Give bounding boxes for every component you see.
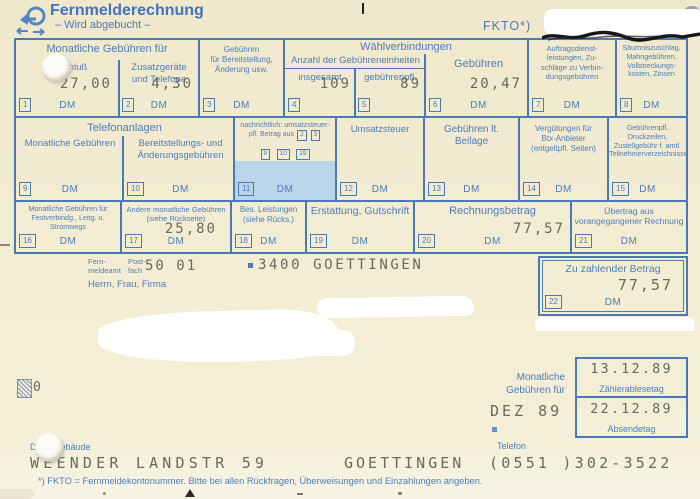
cell-label: Säumniszuschlag, Mahngebühren, Vollstrec… xyxy=(617,44,686,79)
currency-label: DM xyxy=(609,184,686,195)
ref-box: 19 xyxy=(296,149,309,160)
pay-value: 77,57 xyxy=(543,276,673,294)
currency-label: DM xyxy=(16,184,124,195)
phone-label: Telefon xyxy=(497,441,526,451)
currency-label: DM xyxy=(426,100,531,111)
currency-label: DM xyxy=(520,184,607,195)
currency-label: DM xyxy=(617,100,686,111)
group-label: Monatliche Gebühren für xyxy=(16,43,198,56)
currency-label: DM xyxy=(572,236,686,247)
currency-label: DM xyxy=(200,100,283,111)
redaction-small xyxy=(535,317,695,331)
cell-value: 20,47 xyxy=(426,76,522,92)
footnote: *) FKTO = Fernmeldekontonummer. Bitte be… xyxy=(38,476,483,486)
fkto-label: FKTO*) xyxy=(483,19,531,33)
cell-label: Gebühren für Bereitstellung, Änderung us… xyxy=(200,45,283,74)
meter-reading-label: Zählerablesetag xyxy=(577,384,686,394)
cell-nachrichtlich: nachrichtlich: umsatzsteuer- pfl. Betrag… xyxy=(233,116,337,202)
period-marker xyxy=(492,427,497,432)
pay-box-inner: Zu zahlender Betrag 77,57 22 DM xyxy=(542,260,684,312)
cell-label-line2: pfl. Betrag aus 2 3 xyxy=(235,130,335,141)
cell-besondere-leistungen: Bes. Leistungen (siehe Rücks.) 18 DM xyxy=(230,200,307,254)
page-title: Fernmelderechnung xyxy=(50,2,204,20)
currency-label: DM xyxy=(232,236,305,247)
city-marker xyxy=(248,263,253,268)
phone-value: (0551 )302-3522 xyxy=(489,454,672,472)
page-subtitle: – Wird abgebucht – xyxy=(55,19,150,31)
cell-label: Übertrag aus vorangegangener Rechnung xyxy=(572,206,686,227)
ref-row: 9 10 19 xyxy=(235,142,335,160)
currency-label: DM xyxy=(16,100,119,111)
cell-beilage: Gebühren lt. Beilage 13 DM xyxy=(423,116,520,202)
city-value: GOETTINGEN xyxy=(344,454,464,472)
ref-box: 10 xyxy=(277,149,290,160)
stray-digit: 0 xyxy=(33,380,41,395)
cell-label: Erstattung, Gutschrift xyxy=(307,205,413,218)
cell-label: Gebühren lt. Beilage xyxy=(425,124,518,148)
cell-number: 5 xyxy=(358,98,370,112)
currency-label: DM xyxy=(122,236,230,247)
cell-label-line1: nachrichtlich: umsatzsteuer- xyxy=(235,121,335,130)
group-label: Wählverbindungen xyxy=(285,41,527,54)
subgroup-label: Anzahl der Gebühreneinheiten xyxy=(285,55,426,69)
cell-label: Bereitstellungs- und Änderungsgebühren xyxy=(124,138,237,161)
send-date-label: Absendetag xyxy=(577,424,686,434)
bottom-tick xyxy=(297,493,303,495)
cell-label: Gebührenpfl. Druckzeilen, Zustellgebühr … xyxy=(609,124,686,159)
edge-artifact xyxy=(0,489,34,499)
ref-box: 9 xyxy=(261,149,271,160)
posthorn-icon xyxy=(12,4,50,36)
meter-reading-box: 13.12.89 Zählerablesetag xyxy=(575,357,688,398)
office-label: Fern- meldeamt xyxy=(88,257,121,275)
currency-label: DM xyxy=(337,184,423,195)
cell-andere-gebuehren: Andere monatliche Gebühren (siehe Rückse… xyxy=(120,200,232,254)
pobox-label: Post- fach xyxy=(128,257,146,275)
group-label: Telefonanlagen xyxy=(16,122,233,135)
send-date-box: 22.12.89 Absendetag xyxy=(575,396,688,438)
pobox-value: 50 01 xyxy=(145,258,197,274)
ref-box: 3 xyxy=(311,130,321,141)
cell-erstattung: Erstattung, Gutschrift 19 DM xyxy=(305,200,415,254)
cell-auftragsdienst: Auftragsdienst- leistungen, Zu- schläge … xyxy=(527,38,617,118)
cell-label: Umsatzsteuer xyxy=(337,124,423,136)
cell-value: 77,57 xyxy=(415,221,565,237)
currency-label: DM xyxy=(529,100,615,111)
cell-label: Auftragsdienst- leistungen, Zu- schläge … xyxy=(529,44,615,81)
cell-festverbindung: Monatliche Gebühren für Festverbindg., L… xyxy=(14,200,122,254)
cell-umsatzsteuer: Umsatzsteuer 12 DM xyxy=(335,116,425,202)
telecom-invoice-sheet: Fernmelderechnung – Wird abgebucht – FKT… xyxy=(0,0,700,499)
meter-reading-date: 13.12.89 xyxy=(577,361,686,377)
bottom-triangle-mark xyxy=(185,489,195,497)
cell-uebertrag: Übertrag aus vorangegangener Rechnung 21… xyxy=(570,200,688,254)
punch-hole-bottom xyxy=(35,433,64,462)
redaction-blob xyxy=(317,296,474,319)
currency-label: DM xyxy=(119,100,199,111)
currency-label: DM xyxy=(425,184,518,195)
period-value: DEZ 89 xyxy=(490,402,562,420)
currency-label: DM xyxy=(124,184,237,195)
ink-scribble xyxy=(542,28,700,46)
currency-label: DM xyxy=(415,236,570,247)
registration-mark xyxy=(362,3,364,14)
punch-hole-top xyxy=(42,53,71,82)
cell-label: Monatliche Gebühren xyxy=(16,138,124,150)
redaction-address2 xyxy=(170,330,355,356)
group-monthly-fees: Monatliche Gebühren für Anschluß Zusatzg… xyxy=(14,38,200,118)
cell-rechnungsbetrag: Rechnungsbetrag 77,57 20 DM xyxy=(413,200,572,254)
cell-label: Gebühren xyxy=(426,58,531,71)
ref-box: 2 xyxy=(297,130,307,141)
cell-label: Vergütungen für Btx-Anbieter (entgeltpfl… xyxy=(520,124,607,153)
group-telefonanlagen: Telefonanlagen Monatliche Gebühren Berei… xyxy=(14,116,235,202)
salutation-label: Herrn, Frau, Firma xyxy=(88,279,166,290)
currency-label: DM xyxy=(307,236,413,247)
pay-box: Zu zahlender Betrag 77,57 22 DM xyxy=(538,256,688,316)
cell-value: 89 xyxy=(355,76,421,92)
currency-label: DM xyxy=(235,184,335,195)
send-date: 22.12.89 xyxy=(577,401,686,417)
cell-value: 109 xyxy=(285,76,351,92)
cell-btx: Vergütungen für Btx-Anbieter (entgeltpfl… xyxy=(518,116,609,202)
cell-label: Monatliche Gebühren für Festverbindg., L… xyxy=(16,205,120,231)
city-line: 3400 GOETTINGEN xyxy=(258,257,423,273)
pay-label: Zu zahlender Betrag xyxy=(543,263,683,276)
cell-label: Bes. Leistungen (siehe Rücks.) xyxy=(232,205,305,225)
cell-bereitstellung: Gebühren für Bereitstellung, Änderung us… xyxy=(198,38,285,118)
currency-label: DM xyxy=(543,297,683,308)
cell-value: 4,30 xyxy=(119,76,193,92)
period-label: Monatliche Gebühren für xyxy=(495,371,565,397)
margin-dash xyxy=(0,244,10,246)
bottom-tick xyxy=(398,492,402,495)
cell-saeumnis: Säumniszuschlag, Mahngebühren, Vollstrec… xyxy=(615,38,688,118)
cell-label: Rechnungsbetrag xyxy=(415,205,570,218)
bottom-tick xyxy=(103,492,106,495)
currency-label: DM xyxy=(16,236,120,247)
cell-druckzeilen: Gebührenpfl. Druckzeilen, Zustellgebühr … xyxy=(607,116,688,202)
street-value: WEENDER LANDSTR 59 xyxy=(30,454,268,472)
hatch-stamp xyxy=(17,379,32,398)
cell-number: 4 xyxy=(288,98,300,112)
group-dial-connections: Wählverbindungen Anzahl der Gebühreneinh… xyxy=(283,38,529,118)
